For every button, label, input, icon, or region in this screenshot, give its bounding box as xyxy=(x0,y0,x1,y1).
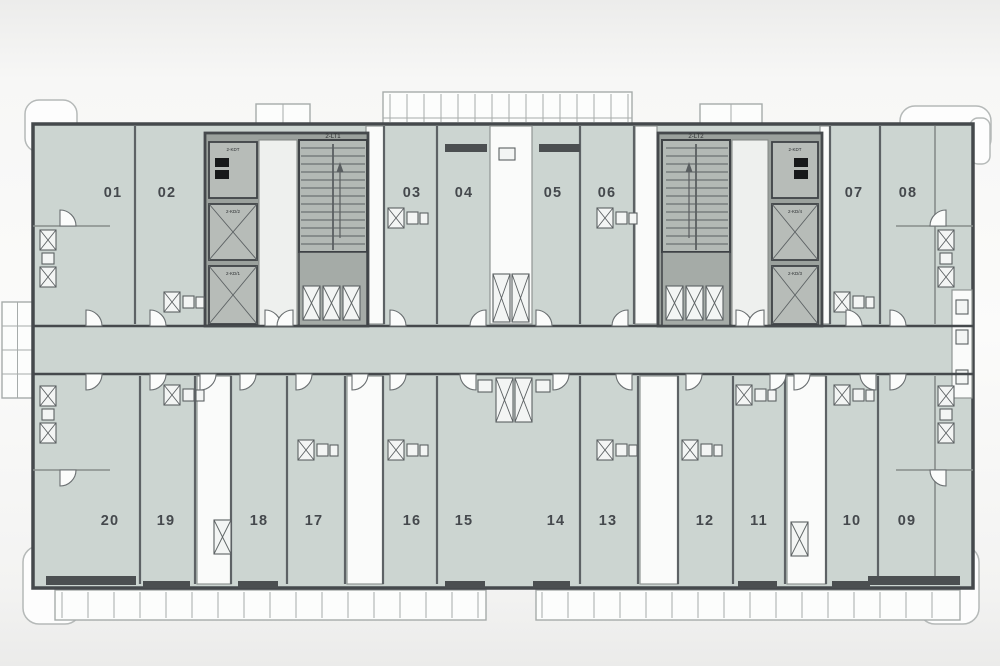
elevator-counterweight xyxy=(794,158,808,167)
unit-label-02: 02 xyxy=(158,185,177,201)
right-elevator-label-3: 2-KD/3 xyxy=(788,271,803,276)
top-center-balcony xyxy=(383,92,632,124)
left-stair-label: 2-LT1 xyxy=(325,134,341,140)
balcony-sill xyxy=(238,581,278,588)
unit-label-15: 15 xyxy=(455,513,474,529)
balcony-sill xyxy=(533,581,570,588)
right-elevator-label-1: 2-KDT xyxy=(788,147,801,152)
unit-label-20: 20 xyxy=(101,513,120,529)
duct-shaft xyxy=(214,520,231,554)
unit-label-01: 01 xyxy=(104,185,123,201)
right-elevator-lobby xyxy=(732,140,768,326)
bath-cluster-unit-09 xyxy=(938,386,954,443)
unit-label-06: 06 xyxy=(598,185,617,201)
duct-shaft xyxy=(323,286,340,320)
left-elevator-label-3: 2-KD/1 xyxy=(226,271,241,276)
elevator-counterweight xyxy=(215,170,229,179)
bath-cluster-unit-20 xyxy=(40,386,56,443)
elevator-counterweight xyxy=(215,158,229,167)
unit-label-10: 10 xyxy=(843,513,862,529)
right-elevator-label-2: 2-KD/4 xyxy=(788,209,803,214)
left-core: 2-KDT 2-KD/2 2-KD/1 2-LT1 xyxy=(205,133,368,326)
service-box xyxy=(956,370,968,384)
service-box xyxy=(956,330,968,344)
duct-shaft xyxy=(303,286,320,320)
floor-plan-drawing: 2-KDT 2-KD/2 2-KD/1 2-LT1 2-LT2 xyxy=(0,0,1000,666)
unit-label-09: 09 xyxy=(898,513,917,529)
elevator-counterweight xyxy=(794,170,808,179)
bath-cluster-unit-01 xyxy=(40,230,56,287)
duct-shaft xyxy=(706,286,723,320)
bath-cluster-unit-08 xyxy=(938,230,954,287)
left-elevator-label-1: 2-KDT xyxy=(226,147,239,152)
unit-label-04: 04 xyxy=(455,185,474,201)
unit-label-16: 16 xyxy=(403,513,422,529)
unit-label-05: 05 xyxy=(544,185,563,201)
void-bottom-3 xyxy=(640,376,678,584)
duct-shaft xyxy=(791,522,808,556)
parapet-bottom-left xyxy=(46,576,136,585)
duct-shaft xyxy=(666,286,683,320)
parapet-bottom-right xyxy=(868,576,960,585)
unit-label-19: 19 xyxy=(157,513,176,529)
unit-label-18: 18 xyxy=(250,513,269,529)
right-core: 2-LT2 2-KDT 2-KD/4 2-KD/3 xyxy=(658,133,822,326)
left-elevator-label-2: 2-KD/2 xyxy=(226,209,241,214)
floor-plan-page: 2-KDT 2-KD/2 2-KD/1 2-LT1 2-LT2 xyxy=(0,0,1000,666)
fixture xyxy=(536,380,550,392)
corridor-end-balcony-left xyxy=(2,302,33,398)
service-box xyxy=(956,300,968,314)
unit-label-13: 13 xyxy=(599,513,618,529)
kitchen-counter xyxy=(539,144,580,152)
unit-label-07: 07 xyxy=(845,185,864,201)
duct-shaft xyxy=(343,286,360,320)
unit-label-08: 08 xyxy=(899,185,918,201)
unit-label-14: 14 xyxy=(547,513,566,529)
balcony-sill xyxy=(445,581,485,588)
void-top-2 xyxy=(635,126,657,324)
balcony-sill xyxy=(738,581,777,588)
balcony-sill xyxy=(832,581,870,588)
left-elevator-lobby xyxy=(259,140,297,326)
unit-label-17: 17 xyxy=(305,513,324,529)
fixture xyxy=(478,380,492,392)
unit-label-11: 11 xyxy=(750,513,768,529)
duct-shaft xyxy=(686,286,703,320)
kitchen-counter xyxy=(445,144,487,152)
balcony-sill xyxy=(143,581,190,588)
right-stair-label: 2-LT2 xyxy=(688,134,704,140)
vent-box xyxy=(499,148,515,160)
unit-label-03: 03 xyxy=(403,185,422,201)
bottom-balcony-right xyxy=(536,590,960,620)
void-bottom-2 xyxy=(347,376,383,584)
unit-label-12: 12 xyxy=(696,513,715,529)
